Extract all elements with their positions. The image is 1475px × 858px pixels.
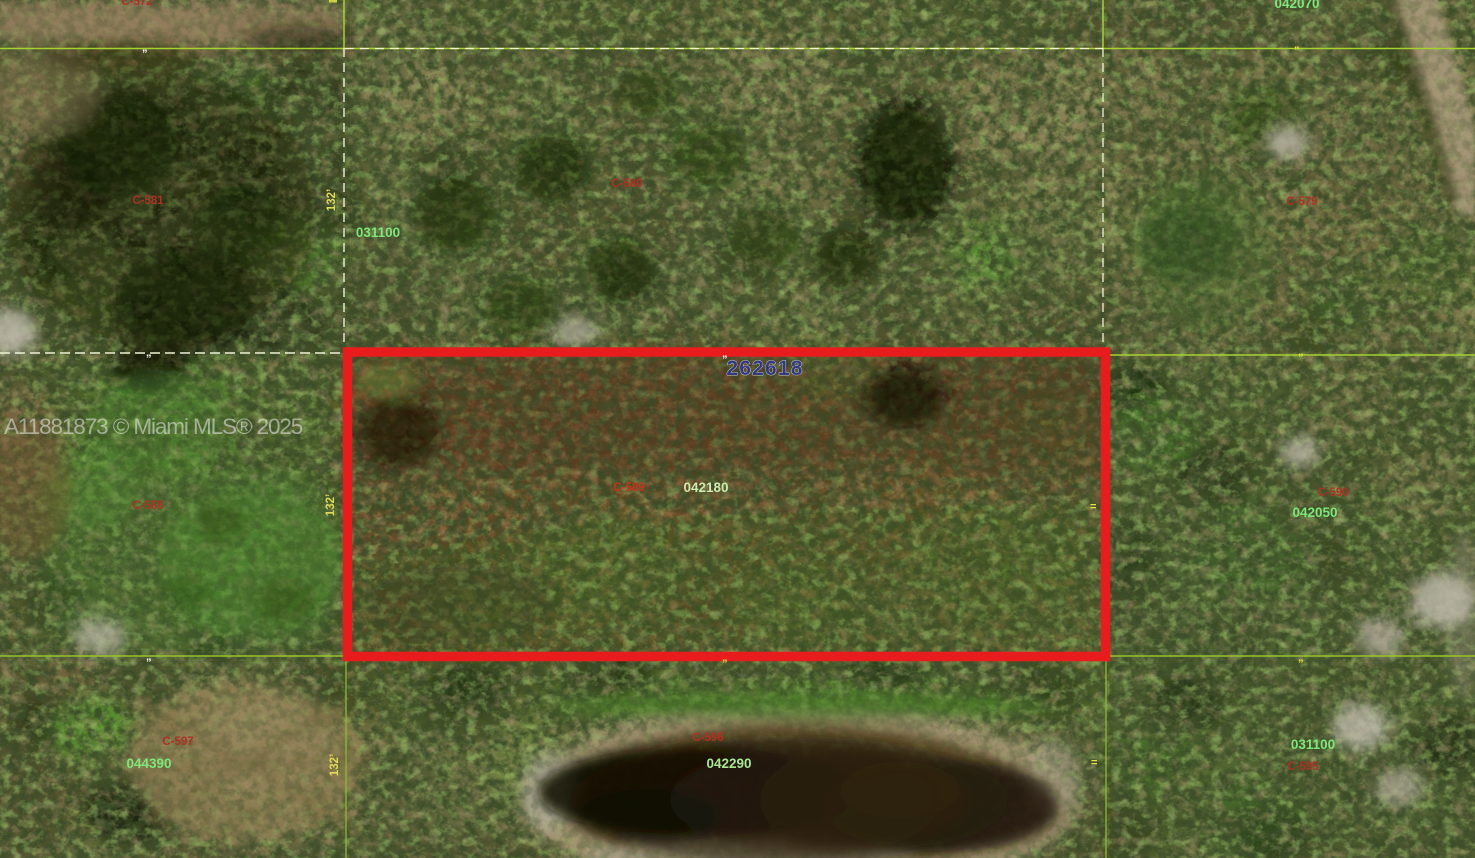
svg-text:”: ” bbox=[1298, 352, 1304, 364]
svg-text:C-589: C-589 bbox=[613, 482, 644, 494]
svg-text:C-595: C-595 bbox=[1287, 761, 1319, 773]
svg-text:C-588: C-588 bbox=[132, 500, 164, 512]
svg-text:042050: 042050 bbox=[1292, 505, 1337, 520]
svg-text:031100: 031100 bbox=[1291, 737, 1335, 752]
svg-text:132’: 132’ bbox=[329, 754, 341, 776]
svg-text:”: ” bbox=[722, 658, 728, 670]
svg-text:C-581: C-581 bbox=[132, 195, 164, 207]
svg-text:”: ” bbox=[1298, 658, 1304, 670]
svg-text:”: ” bbox=[142, 48, 148, 60]
svg-text:C-580: C-580 bbox=[611, 178, 642, 190]
svg-text:C-590: C-590 bbox=[1317, 487, 1348, 499]
svg-text:C-596: C-596 bbox=[692, 732, 723, 744]
svg-text:042290: 042290 bbox=[706, 756, 751, 771]
svg-text:132’: 132’ bbox=[326, 189, 338, 211]
svg-text:262618: 262618 bbox=[726, 357, 803, 380]
svg-text:C-579: C-579 bbox=[1286, 196, 1317, 208]
svg-text:=: = bbox=[1090, 501, 1096, 513]
svg-text:132’: 132’ bbox=[325, 494, 337, 516]
svg-text:031100: 031100 bbox=[356, 225, 400, 240]
svg-text:042180: 042180 bbox=[683, 480, 728, 495]
svg-text:042070: 042070 bbox=[1274, 0, 1319, 11]
svg-text:”: ” bbox=[146, 657, 152, 669]
svg-text:=: = bbox=[1091, 757, 1097, 769]
svg-text:C-572: C-572 bbox=[121, 0, 152, 8]
svg-text:”: ” bbox=[1294, 45, 1300, 57]
svg-text:”: ” bbox=[146, 353, 152, 365]
svg-text:C-597: C-597 bbox=[162, 736, 193, 748]
svg-text:044390: 044390 bbox=[126, 756, 171, 771]
svg-text:A11881873 © Miami MLS® 2025: A11881873 © Miami MLS® 2025 bbox=[4, 414, 303, 439]
